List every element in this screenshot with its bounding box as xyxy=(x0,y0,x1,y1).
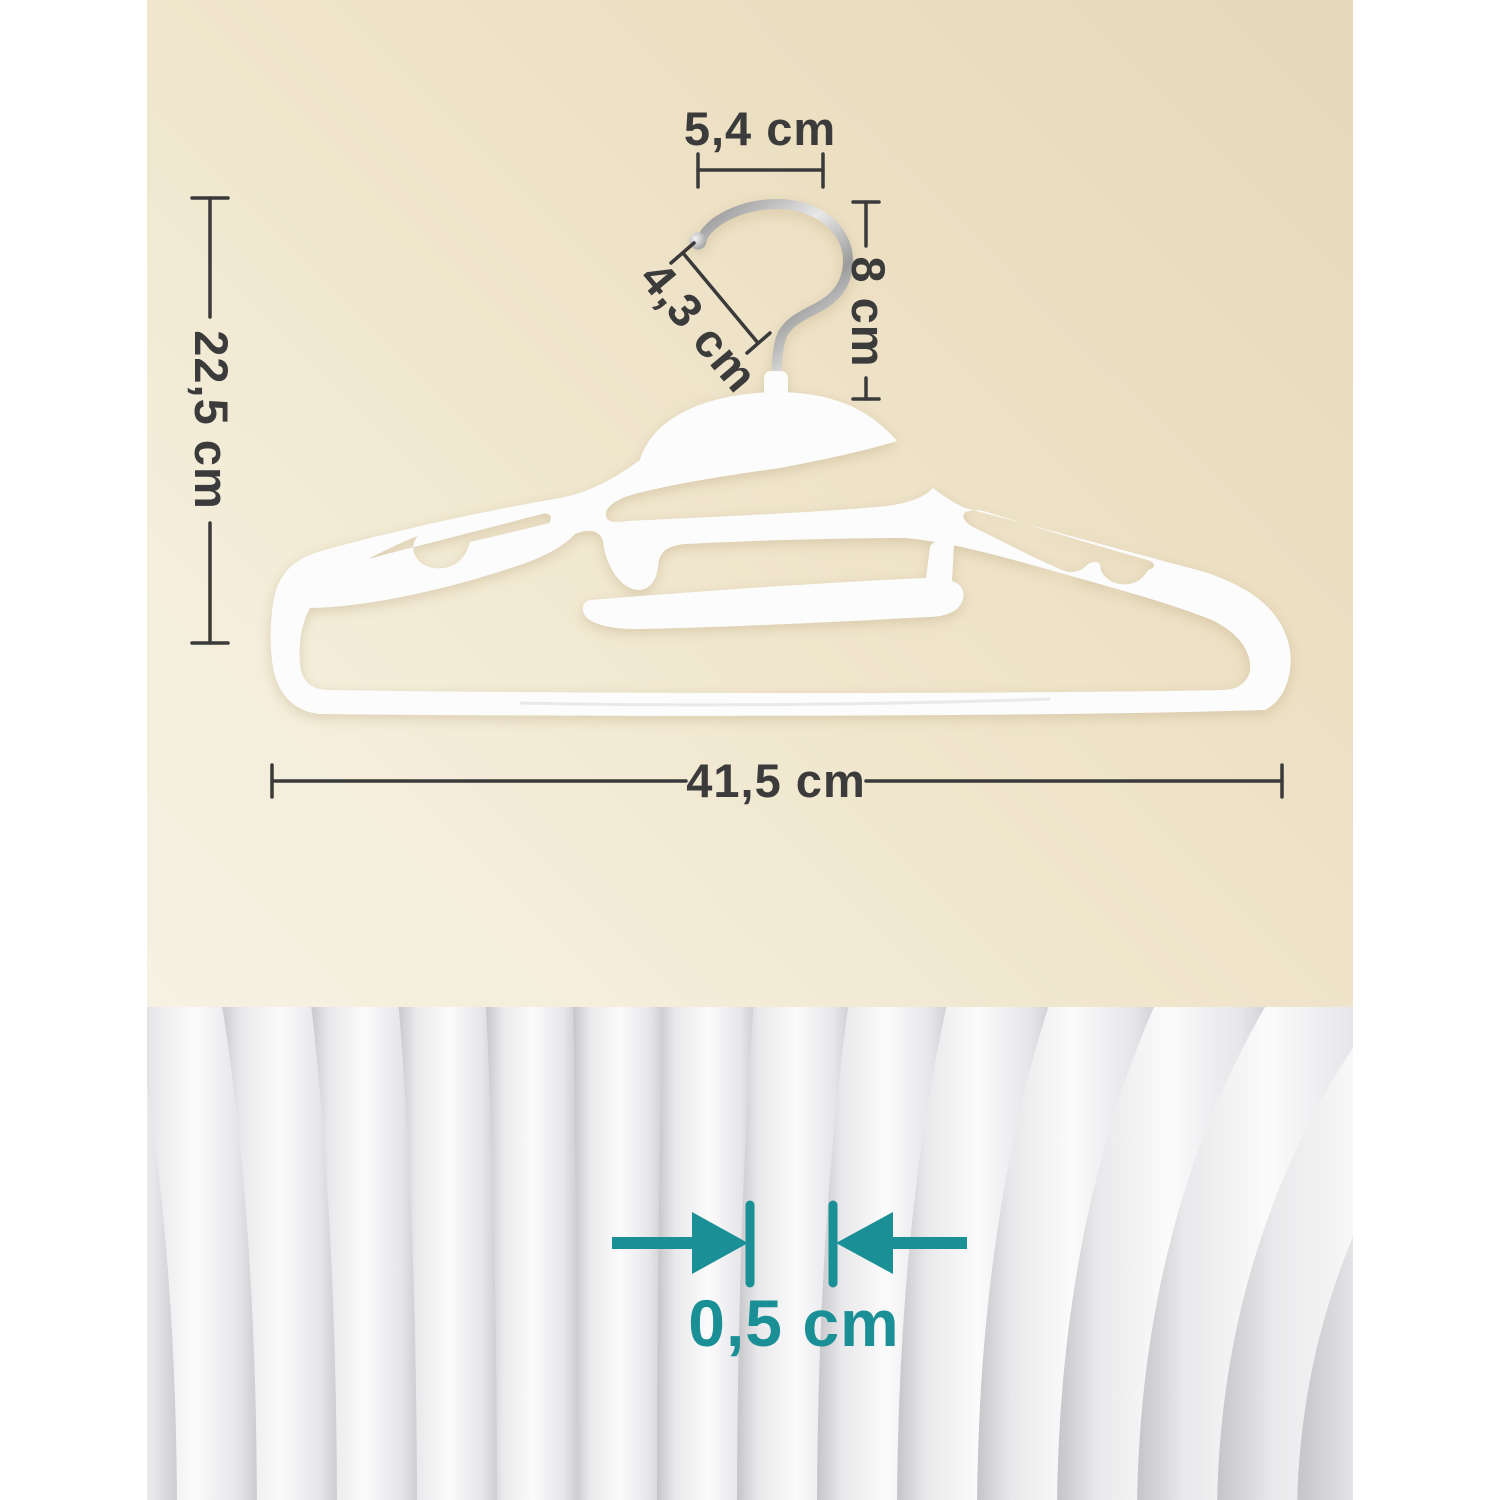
hook-width-label: 5,4 cm xyxy=(610,103,910,155)
total-width-label: 41,5 cm xyxy=(626,755,926,807)
stacked-hangers-photo xyxy=(147,1007,1353,1500)
dim-hook-width-line xyxy=(698,154,823,187)
hook-height-label: 8 cm xyxy=(842,212,894,412)
thickness-label: 0,5 cm xyxy=(644,1291,944,1355)
diagram-panel: 5,4 cm 8 cm 4,3 cm 22,5 cm 41,5 cm xyxy=(147,0,1353,1007)
product-dimension-image: 5,4 cm 8 cm 4,3 cm 22,5 cm 41,5 cm xyxy=(0,0,1500,1500)
thickness-photo-panel: 0,5 cm xyxy=(147,1007,1353,1500)
total-height-label: 22,5 cm xyxy=(185,270,237,570)
